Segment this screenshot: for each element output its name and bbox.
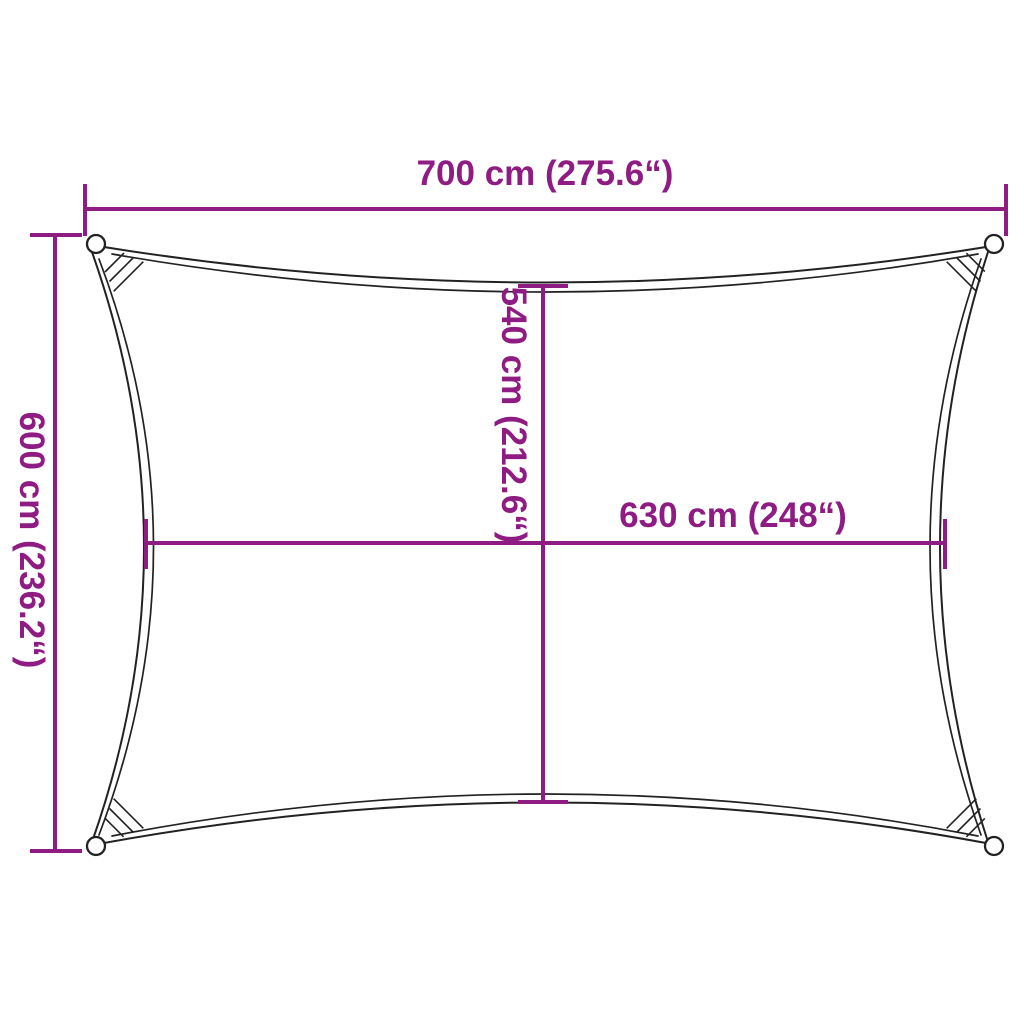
dim-inner-width-tick-right — [943, 519, 947, 569]
dim-height-line — [53, 235, 57, 851]
dim-height-tick-top — [30, 233, 82, 237]
dim-width-tick-left — [83, 184, 87, 236]
sail-edge-bottom-outer — [104, 803, 986, 844]
grommets — [87, 235, 1003, 855]
dim-inner-height-tick-bottom — [518, 800, 568, 804]
dim-inner-width-tick-left — [144, 519, 148, 569]
dimension-diagram: 700 cm (275.6“) 600 cm (236.2“) 540 cm (… — [0, 0, 1024, 1024]
sail-edges — [92, 247, 988, 843]
dim-height-tick-bottom — [30, 849, 82, 853]
sail-edge-top-outer — [104, 247, 986, 283]
grommet-ring-bottom-left — [87, 837, 105, 855]
dim-width-tick-right — [1004, 184, 1008, 236]
dim-height-label: 600 cm (236.2“) — [9, 380, 53, 700]
dim-inner-width-label: 630 cm (248“) — [573, 494, 893, 538]
grommet-ring-bottom-right — [985, 837, 1003, 855]
dim-inner-height-label: 540 cm (212.6“) — [491, 255, 535, 575]
dim-inner-width-line — [146, 541, 945, 545]
dim-width-label: 700 cm (275.6“) — [385, 152, 705, 196]
sail-edge-right-outer — [940, 252, 988, 842]
grommet-ring-top-left — [87, 235, 105, 253]
dim-width-line — [85, 207, 1006, 211]
grommet-ring-top-right — [985, 235, 1003, 253]
sail-edge-right-inner — [930, 259, 981, 835]
sail-edge-left-outer — [92, 252, 144, 842]
